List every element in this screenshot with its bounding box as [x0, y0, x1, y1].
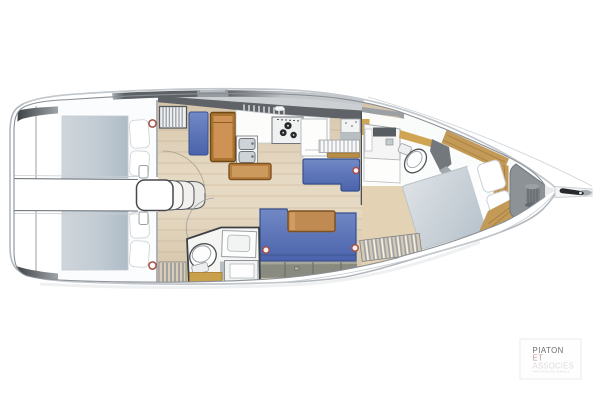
svg-text:ARCHITECTES NAVALS: ARCHITECTES NAVALS: [533, 370, 570, 374]
